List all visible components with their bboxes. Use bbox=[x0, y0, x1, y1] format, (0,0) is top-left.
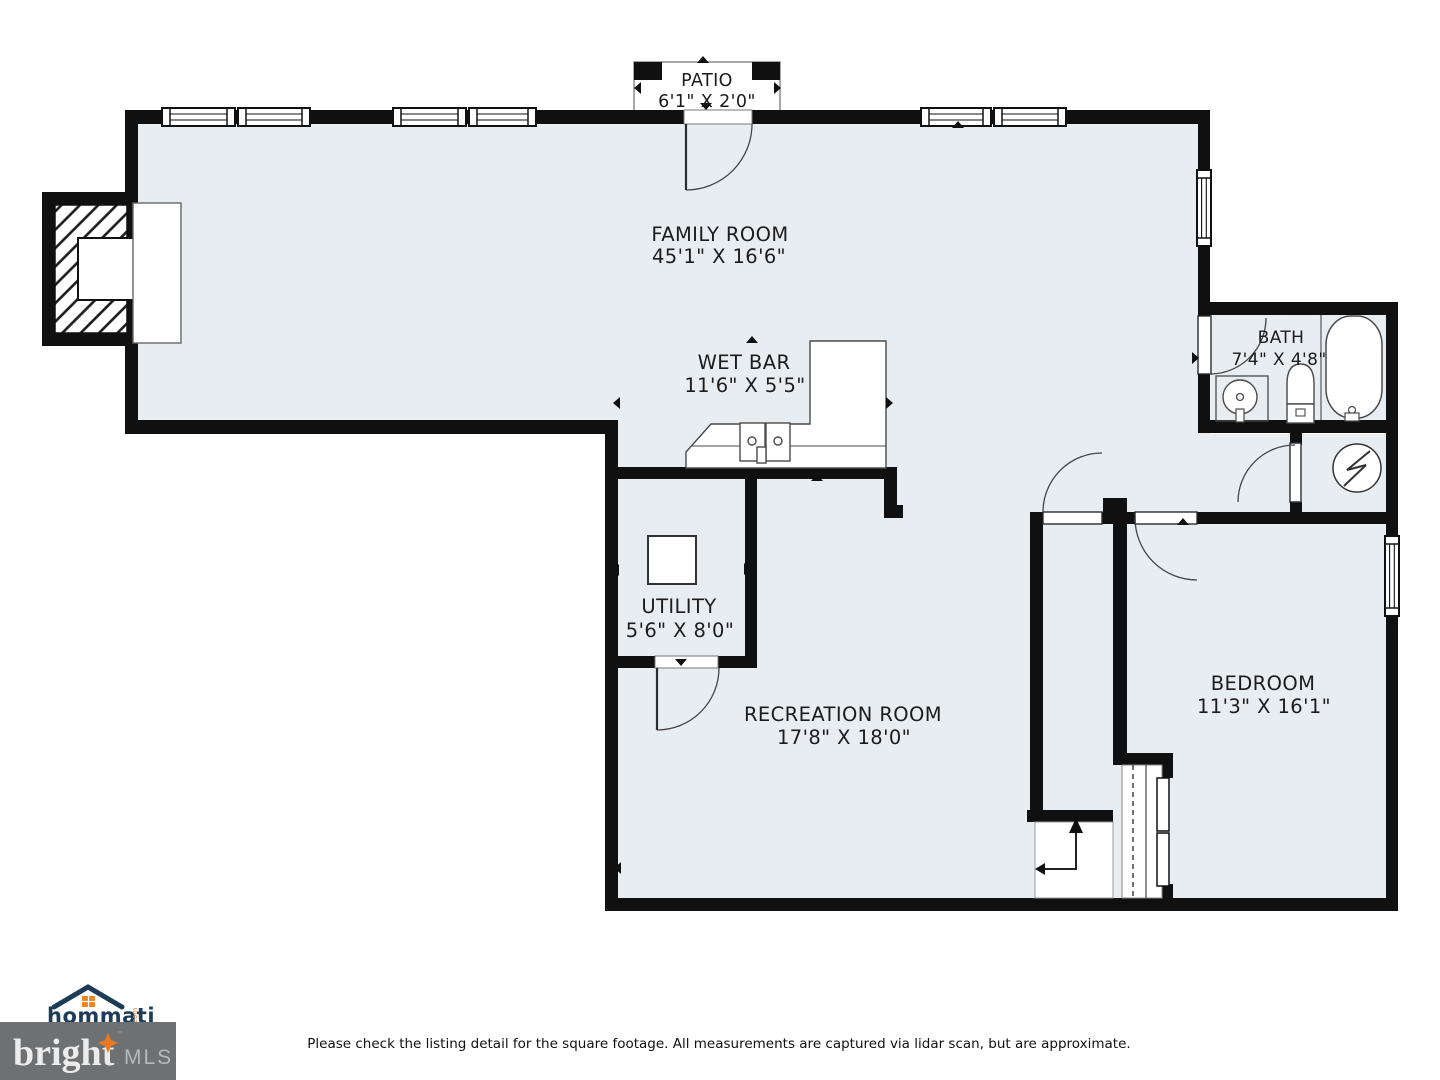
closet bbox=[1122, 765, 1169, 898]
water-heater-icon bbox=[1333, 444, 1381, 492]
window bbox=[994, 108, 1066, 126]
patio-dims: 6'1" X 2'0" bbox=[658, 92, 756, 112]
wall-wh-left-bottom bbox=[1290, 502, 1302, 524]
patio-label: PATIO bbox=[681, 71, 733, 91]
toilet-icon bbox=[1287, 364, 1314, 423]
family-room-label: FAMILY ROOM bbox=[651, 223, 788, 246]
utility-label: UTILITY bbox=[641, 595, 716, 618]
bright-wordmark: bright bbox=[13, 1032, 115, 1074]
closet-door-panel bbox=[1157, 778, 1169, 831]
wall-wetbar bbox=[618, 467, 897, 479]
wall-wetbar-foot bbox=[884, 505, 903, 518]
wall-stairs-top bbox=[1027, 810, 1113, 822]
wall-bottom bbox=[605, 898, 1398, 911]
window bbox=[469, 108, 536, 126]
closet-door-panel bbox=[1157, 833, 1169, 886]
wall-closet-top bbox=[1113, 753, 1173, 765]
bathtub-icon bbox=[1326, 316, 1382, 421]
hearth bbox=[133, 203, 181, 343]
floor-plan-page: PATIO 6'1" X 2'0" FAMILY ROOM 45'1" X 16… bbox=[0, 0, 1440, 1080]
recreation-room-label: RECREATION ROOM bbox=[744, 703, 942, 726]
wall-corridor-left bbox=[1030, 512, 1043, 822]
footer-disclaimer: Please check the listing detail for the … bbox=[307, 1036, 1130, 1052]
patio-post-right bbox=[752, 62, 780, 80]
family-room-dims: 45'1" X 16'6" bbox=[652, 245, 786, 268]
window bbox=[1197, 170, 1211, 246]
bright-tm: ™ bbox=[116, 1030, 124, 1039]
floor-plan: PATIO 6'1" X 2'0" FAMILY ROOM 45'1" X 16… bbox=[0, 0, 1440, 1080]
stairs-up-icon bbox=[1035, 818, 1113, 898]
window bbox=[162, 108, 235, 126]
utility-appliance bbox=[648, 536, 696, 584]
wet-bar-label: WET BAR bbox=[698, 351, 791, 374]
window bbox=[393, 108, 466, 126]
recreation-room-dims: 17'8" X 18'0" bbox=[777, 726, 911, 749]
window bbox=[921, 108, 991, 126]
window bbox=[238, 108, 310, 126]
mls-wordmark: MLS bbox=[124, 1046, 173, 1069]
bedroom-dims: 11'3" X 16'1" bbox=[1197, 695, 1331, 718]
window bbox=[1385, 536, 1399, 616]
utility-dims: 5'6" X 8'0" bbox=[626, 619, 734, 642]
patio-post-left bbox=[634, 62, 662, 80]
bath-label: BATH bbox=[1258, 328, 1305, 348]
wet-bar-dims: 11'6" X 5'5" bbox=[684, 374, 805, 397]
bath-dims: 7'4" X 4'8" bbox=[1231, 350, 1326, 370]
bedroom-label: BEDROOM bbox=[1211, 672, 1316, 695]
wall-family-bottom bbox=[125, 420, 618, 434]
bright-mls-logo: bright ™ MLS bbox=[0, 1022, 176, 1080]
double-sink-icon bbox=[740, 423, 790, 463]
fireplace-icon bbox=[42, 192, 181, 346]
wall-mid-stub bbox=[1103, 498, 1127, 512]
